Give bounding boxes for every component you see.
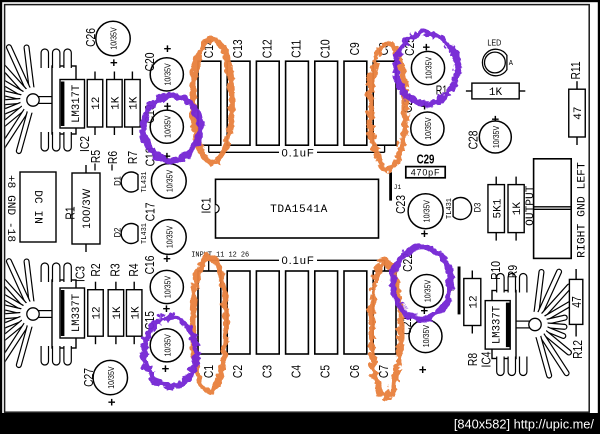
svg-text:1K: 1K <box>111 96 123 110</box>
svg-text:12: 12 <box>468 295 480 308</box>
svg-text:C6: C6 <box>347 365 363 379</box>
svg-text:10/35V: 10/35V <box>109 27 119 49</box>
svg-text:J1: J1 <box>394 184 402 191</box>
svg-text:100/3W: 100/3W <box>81 188 93 229</box>
svg-text:10/35V: 10/35V <box>165 170 175 192</box>
svg-text:1K: 1K <box>489 87 503 99</box>
svg-text:C10: C10 <box>317 39 333 58</box>
svg-text:D2: D2 <box>112 227 123 237</box>
svg-text:C11: C11 <box>288 40 304 58</box>
svg-text:TL431: TL431 <box>141 223 149 244</box>
svg-text:+: + <box>163 252 171 267</box>
svg-text:D3: D3 <box>472 202 483 212</box>
svg-text:+8 GND -18: +8 GND -18 <box>4 175 16 242</box>
svg-text:10/35V: 10/35V <box>424 57 434 79</box>
svg-text:12: 12 <box>91 97 103 110</box>
svg-text:10/35V: 10/35V <box>163 63 173 85</box>
svg-text:C13: C13 <box>230 39 246 58</box>
svg-text:5K1: 5K1 <box>492 198 504 218</box>
svg-text:10/35V: 10/35V <box>422 200 432 222</box>
svg-text:1K: 1K <box>112 306 124 320</box>
svg-text:R5: R5 <box>88 150 104 164</box>
svg-text:R7: R7 <box>125 151 141 164</box>
svg-text:DC IN: DC IN <box>31 190 43 224</box>
svg-text:10/35V: 10/35V <box>492 126 502 148</box>
svg-text:C27: C27 <box>81 368 97 387</box>
svg-text:+: + <box>419 363 427 378</box>
svg-text:10/35V: 10/35V <box>163 116 173 138</box>
svg-text:12: 12 <box>92 306 104 319</box>
svg-text:LED: LED <box>487 38 501 48</box>
svg-text:LM317T: LM317T <box>71 85 83 123</box>
svg-text:R10: R10 <box>488 261 504 280</box>
svg-text:1K: 1K <box>130 306 142 320</box>
svg-text:C29: C29 <box>417 153 435 167</box>
svg-text:10/35V: 10/35V <box>163 334 173 356</box>
svg-text:IC3: IC3 <box>72 266 88 282</box>
svg-text:+: + <box>110 56 118 71</box>
svg-text:C3: C3 <box>259 365 275 379</box>
svg-text:LM337T: LM337T <box>491 306 503 344</box>
svg-text:IC2: IC2 <box>77 136 93 152</box>
svg-text:C16: C16 <box>142 255 158 274</box>
svg-text:+: + <box>108 395 116 410</box>
svg-text:TL431: TL431 <box>446 198 454 219</box>
svg-text:+: + <box>421 227 429 242</box>
svg-text:C12: C12 <box>259 39 275 58</box>
svg-text:R6: R6 <box>105 151 121 165</box>
svg-text:R3: R3 <box>107 263 123 277</box>
svg-text:IC4: IC4 <box>478 351 494 367</box>
svg-text:C26: C26 <box>83 28 99 47</box>
svg-text:R8: R8 <box>465 353 481 367</box>
svg-text:LM337T: LM337T <box>71 294 83 332</box>
svg-text:10/35V: 10/35V <box>163 276 173 298</box>
svg-text:R12: R12 <box>570 340 586 359</box>
svg-text:47: 47 <box>573 106 585 119</box>
svg-text:10/35V: 10/35V <box>422 325 432 347</box>
svg-text:R1: R1 <box>62 206 78 219</box>
svg-text:C2: C2 <box>230 365 246 378</box>
svg-text:RIGHT GND LEFT: RIGHT GND LEFT <box>576 162 588 258</box>
svg-text:R2: R2 <box>88 263 104 276</box>
svg-text:10/35V: 10/35V <box>107 366 117 388</box>
svg-text:C9: C9 <box>347 42 363 56</box>
svg-text:+: + <box>162 362 170 377</box>
svg-text:TDA1541A: TDA1541A <box>270 204 328 216</box>
svg-text:1K: 1K <box>512 202 524 216</box>
svg-text:C23: C23 <box>393 195 409 214</box>
svg-text:10/35V: 10/35V <box>424 117 434 139</box>
svg-text:470pF: 470pF <box>411 167 441 177</box>
svg-text:C1: C1 <box>201 365 217 378</box>
svg-text:TL431: TL431 <box>141 171 149 192</box>
svg-text:C5: C5 <box>317 365 333 379</box>
svg-text:C4: C4 <box>288 365 304 379</box>
svg-text:C20: C20 <box>142 52 158 71</box>
svg-text:R9: R9 <box>505 265 521 279</box>
svg-text:IC1: IC1 <box>198 197 214 213</box>
svg-text:10/35V: 10/35V <box>165 226 175 248</box>
svg-text:C28: C28 <box>465 130 481 149</box>
svg-text:+: + <box>164 42 172 57</box>
svg-text:1K: 1K <box>129 96 141 110</box>
svg-text:D1: D1 <box>112 176 123 186</box>
svg-text:0.1uF: 0.1uF <box>281 147 314 159</box>
svg-text:R4: R4 <box>126 263 142 277</box>
svg-text:0.1uF: 0.1uF <box>281 255 314 267</box>
svg-text:R11: R11 <box>568 61 584 79</box>
svg-text:C17: C17 <box>142 203 158 222</box>
svg-text:[840x582] http://upic.me/: [840x582] http://upic.me/ <box>454 417 595 432</box>
svg-text:47: 47 <box>568 296 584 307</box>
svg-text:10/35V: 10/35V <box>423 280 433 302</box>
svg-text:C7: C7 <box>376 365 392 378</box>
